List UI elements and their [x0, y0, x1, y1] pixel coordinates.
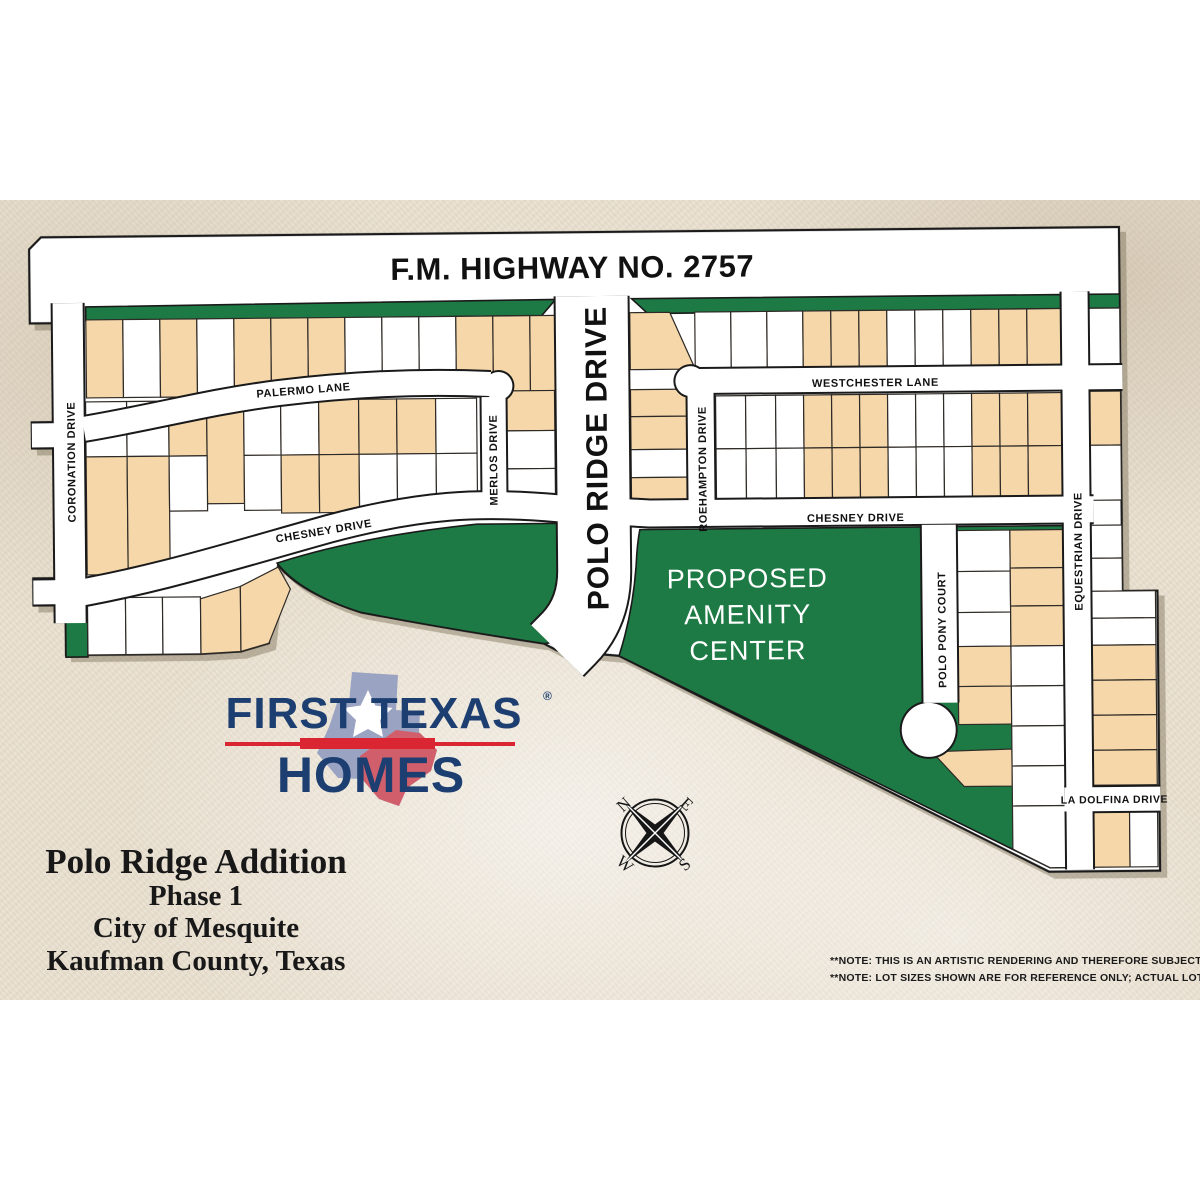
- lots-equestrian-east-lower: [1090, 591, 1158, 868]
- westchester-lane-label: WESTCHESTER LANE: [812, 377, 939, 390]
- compass-star-seams: [625, 803, 684, 862]
- note-line-2: **NOTE: LOT SIZES SHOWN ARE FOR REFERENC…: [830, 972, 1200, 984]
- lot: [1010, 530, 1065, 569]
- lot: [281, 455, 320, 513]
- lot: [319, 399, 360, 454]
- lot: [1000, 393, 1029, 446]
- roehampton-drive-label: ROEHAMPTON DRIVE: [697, 406, 710, 532]
- chesney-drive-east-label: CHESNEY DRIVE: [807, 512, 905, 525]
- lot: [631, 449, 687, 478]
- lot: [1011, 606, 1066, 647]
- lot: [86, 320, 124, 398]
- lot: [944, 393, 973, 446]
- lot: [1130, 812, 1159, 867]
- lot: [958, 686, 1011, 725]
- lot: [716, 396, 747, 449]
- lot: [957, 530, 1010, 572]
- lot: [160, 319, 198, 397]
- lot: [436, 398, 478, 453]
- lot: [804, 395, 833, 448]
- lot: [1090, 591, 1155, 619]
- lot: [125, 597, 163, 654]
- lot: [123, 319, 161, 397]
- lot: [832, 395, 861, 448]
- logo-text-bottom: HOMES: [277, 747, 465, 803]
- notes-block: **NOTE: THIS IS AN ARTISTIC RENDERING AN…: [830, 955, 1200, 984]
- lot: [1011, 646, 1066, 687]
- lot: [1088, 391, 1121, 445]
- highway-label: F.M. HIGHWAY NO. 2757: [390, 249, 754, 287]
- amenity-label-line3: CENTER: [689, 635, 806, 666]
- compass-s: S: [675, 854, 695, 874]
- title-line-4: Kaufman County, Texas: [47, 945, 346, 977]
- lot: [530, 315, 557, 393]
- lot: [506, 390, 554, 430]
- lot: [127, 456, 170, 568]
- lot: [887, 310, 916, 367]
- lot: [631, 416, 687, 450]
- lot: [916, 394, 945, 447]
- lot: [731, 311, 768, 368]
- lot: [776, 395, 805, 448]
- lot: [1012, 766, 1067, 807]
- lot: [630, 389, 686, 417]
- lot: [767, 311, 804, 368]
- lot: [87, 598, 126, 655]
- polo-pony-court-label: POLO PONY COURT: [936, 571, 949, 687]
- title-block: Polo Ridge Addition Phase 1 City of Mesq…: [45, 842, 346, 977]
- lots-roehampton-west: [630, 389, 687, 510]
- lot: [803, 311, 832, 368]
- lot: [915, 310, 944, 367]
- merlos-drive-label: MERLOS DRIVE: [488, 414, 501, 505]
- first-texas-homes-logo: FIRST TEXAS ® HOMES: [225, 672, 552, 806]
- site-plan-map: F.M. HIGHWAY NO. 2757 CORONATION DRIVE P…: [0, 0, 1200, 1200]
- lot: [397, 399, 437, 454]
- compass-rose-icon: N E S W: [613, 793, 697, 877]
- lot: [1088, 308, 1121, 365]
- lot: [162, 597, 201, 654]
- logo-text-top: FIRST TEXAS: [225, 689, 522, 738]
- lot: [958, 646, 1011, 687]
- lot: [888, 394, 917, 447]
- lot: [972, 393, 1001, 446]
- lot: [1092, 715, 1157, 751]
- lot: [1091, 680, 1156, 716]
- lot: [958, 612, 1011, 647]
- title-line-2: Phase 1: [149, 880, 243, 912]
- lot: [1090, 558, 1122, 591]
- amenity-label-line2: AMENITY: [684, 599, 811, 630]
- equestrian-drive-label: EQUESTRIAN DRIVE: [1072, 492, 1085, 611]
- coronation-drive-label: CORONATION DRIVE: [66, 402, 79, 523]
- lot: [859, 310, 888, 367]
- lot: [1012, 726, 1067, 767]
- lot: [359, 399, 398, 454]
- lot: [169, 456, 208, 511]
- lot: [971, 309, 1000, 366]
- lot: [746, 395, 777, 448]
- lot: [197, 319, 235, 397]
- lot: [1089, 445, 1122, 500]
- lot: [244, 455, 282, 510]
- page: { "colors": { "background_band": "#e9e0d…: [0, 0, 1200, 1200]
- lot: [1010, 568, 1065, 607]
- lot: [695, 312, 732, 369]
- lot: [943, 309, 972, 366]
- lot: [1011, 686, 1066, 727]
- lot: [86, 457, 128, 575]
- lot: [957, 571, 1010, 613]
- title-line-1: Polo Ridge Addition: [45, 842, 346, 881]
- map-panel: F.M. HIGHWAY NO. 2757 CORONATION DRIVE P…: [29, 227, 1169, 882]
- polo-ridge-drive-label: POLO RIDGE DRIVE: [580, 306, 616, 611]
- title-line-3: City of Mesquite: [93, 912, 299, 944]
- lot: [999, 309, 1028, 366]
- lot: [1092, 750, 1157, 786]
- lot: [319, 454, 360, 512]
- lots-midright-upper: [716, 393, 1062, 449]
- green-strip-far-east: [1088, 294, 1120, 308]
- lot: [1027, 309, 1062, 366]
- lot: [1093, 812, 1131, 867]
- lot: [1091, 618, 1156, 646]
- lots-equestrian-east-upper: [1088, 308, 1123, 591]
- lot: [1028, 393, 1063, 446]
- lot: [200, 586, 241, 653]
- logo-registered-mark: ®: [543, 689, 552, 703]
- lot: [1091, 645, 1156, 681]
- lot: [281, 400, 320, 455]
- lot: [831, 311, 860, 368]
- map-shape: [901, 703, 956, 758]
- la-dolfina-drive-label: LA DOLFINA DRIVE: [1061, 794, 1169, 807]
- lots-merlos-east: [506, 390, 555, 505]
- lot: [860, 394, 889, 447]
- note-line-1: **NOTE: THIS IS AN ARTISTIC RENDERING AN…: [830, 955, 1200, 967]
- lot: [507, 430, 555, 468]
- amenity-label-line1: PROPOSED: [667, 563, 828, 595]
- lot: [1090, 525, 1122, 558]
